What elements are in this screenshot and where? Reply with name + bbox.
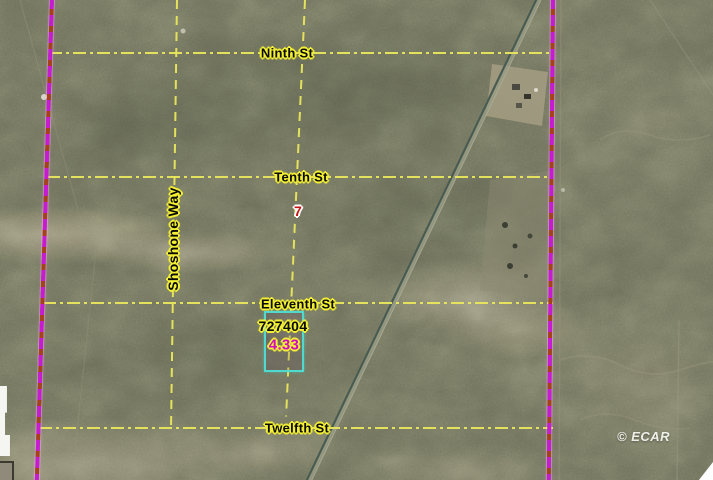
street-label-twelfth: Twelfth St [265,421,329,436]
parcel-number-label: 727404 [258,318,307,334]
section-number-label: 7 [294,203,302,219]
terrain-grain-texture [0,0,713,480]
parcel-acreage-label: 4.33 [269,337,299,354]
ecar-watermark: © ECAR [617,429,670,444]
gravel-area [480,170,555,300]
corner-artifact-box [0,461,14,480]
parcel-map-image[interactable]: Ninth St Tenth St Eleventh St Twelfth St… [0,0,713,480]
street-label-tenth: Tenth St [274,170,327,185]
street-label-eleventh: Eleventh St [261,297,335,312]
street-label-ninth: Ninth St [261,46,313,61]
terrain-imagery [0,0,713,480]
street-label-shoshone-way: Shoshone Way [165,187,181,290]
